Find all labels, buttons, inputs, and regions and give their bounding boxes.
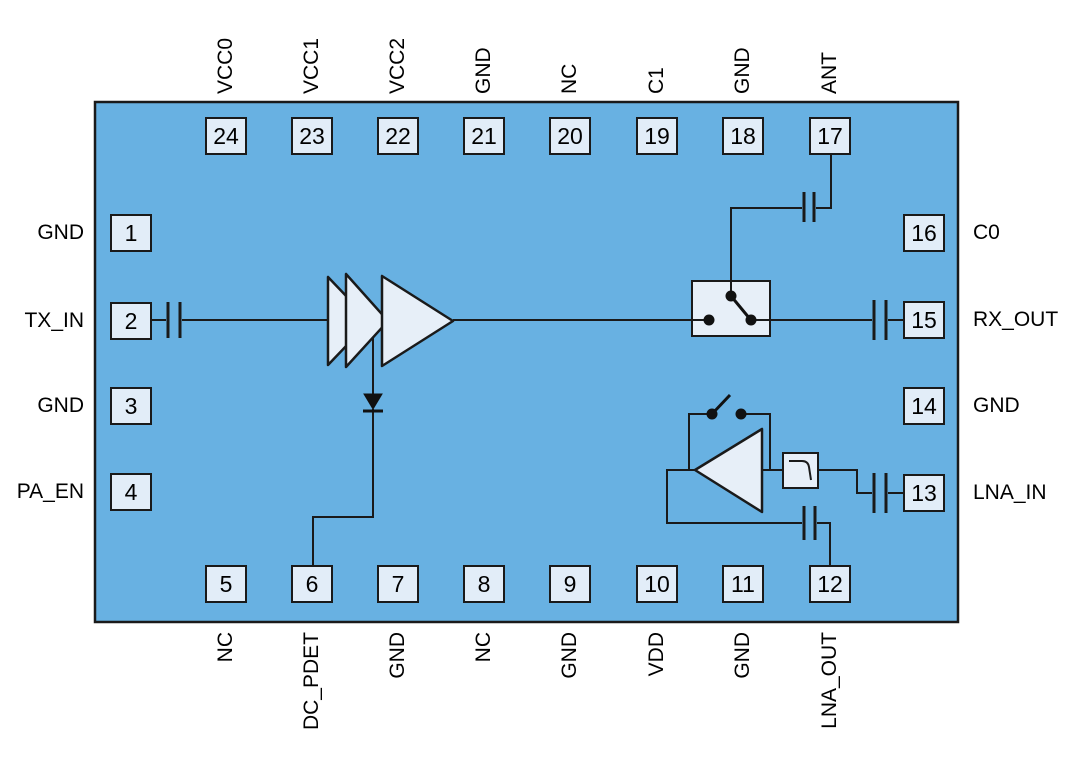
pin-1: 1 [110,214,152,252]
pin-24-label: VCC0 [213,0,239,94]
pin-2-number: 2 [125,310,138,333]
bypass-left-dot [707,409,718,420]
pin-18-number: 18 [730,125,756,148]
bypass-right-dot [736,409,747,420]
pin-16-label: C0 [973,220,1079,246]
pin-16: 16 [903,214,945,252]
pin-8: 8 [463,565,505,603]
pin-13-number: 13 [911,482,937,505]
switch-right-dot [746,315,757,326]
pin-19-label: C1 [644,0,670,94]
pin-22: 22 [377,117,419,155]
pin-2: 2 [110,302,152,340]
pin-17-number: 17 [817,125,843,148]
pin-21-label: GND [471,0,497,94]
pin-11: 11 [722,565,764,603]
pin-12: 12 [809,565,851,603]
pin-6-number: 6 [306,573,319,596]
pin-15-number: 15 [911,309,937,332]
circuit-diagram [0,0,1079,758]
pin-22-number: 22 [385,125,411,148]
pin-23-label: VCC1 [299,0,325,94]
pin-3-label: GND [0,393,84,419]
pin-19-number: 19 [644,125,670,148]
switch-pole-dot [726,291,737,302]
pin-20: 20 [549,117,591,155]
pin-12-number: 12 [817,573,843,596]
pin-24: 24 [205,117,247,155]
pin-18-label: GND [730,0,756,94]
pin-12-label: LNA_OUT [817,632,843,758]
filter-response-icon [783,453,818,488]
pin-5: 5 [205,565,247,603]
pin-11-number: 11 [731,573,755,596]
pin-7-number: 7 [392,573,405,596]
pin-14-label: GND [973,393,1079,419]
block-diagram-canvas: 24 23 22 21 20 19 18 17 5 6 7 8 9 10 11 … [0,0,1079,758]
pin-15-label: RX_OUT [973,307,1079,333]
pin-9: 9 [549,565,591,603]
pin-16-number: 16 [911,222,937,245]
pin-18: 18 [722,117,764,155]
pin-22-label: VCC2 [385,0,411,94]
pin-6: 6 [291,565,333,603]
pin-19: 19 [636,117,678,155]
pin-9-label: GND [557,632,583,758]
pin-1-label: GND [0,220,84,246]
pin-4-number: 4 [125,481,138,504]
pin-13: 13 [903,474,945,512]
pin-7: 7 [377,565,419,603]
pin-4-label: PA_EN [0,479,84,505]
pin-8-number: 8 [478,573,491,596]
pin-21-number: 21 [471,125,497,148]
pin-10: 10 [636,565,678,603]
pin-23-number: 23 [299,125,325,148]
pin-1-number: 1 [125,222,138,245]
pin-20-label: NC [557,0,583,94]
pin-5-label: NC [213,632,239,758]
pin-21: 21 [463,117,505,155]
pin-13-label: LNA_IN [973,480,1079,506]
pin-23: 23 [291,117,333,155]
pin-3: 3 [110,387,152,425]
pin-17: 17 [809,117,851,155]
pin-11-label: GND [730,632,756,758]
pin-14: 14 [903,387,945,425]
pin-20-number: 20 [557,125,583,148]
pin-6-label: DC_PDET [299,632,325,758]
switch-left-dot [704,315,715,326]
pin-17-label: ANT [817,0,843,94]
pin-5-number: 5 [220,573,233,596]
pin-2-label: TX_IN [0,308,84,334]
pin-3-number: 3 [125,395,138,418]
pin-7-label: GND [385,632,411,758]
pin-9-number: 9 [564,573,577,596]
pin-10-number: 10 [644,573,670,596]
pin-8-label: NC [471,632,497,758]
pin-10-label: VDD [644,632,670,758]
pin-24-number: 24 [213,125,239,148]
pin-15: 15 [903,301,945,339]
pin-14-number: 14 [911,395,937,418]
chip-body [95,102,958,622]
pin-4: 4 [110,473,152,511]
